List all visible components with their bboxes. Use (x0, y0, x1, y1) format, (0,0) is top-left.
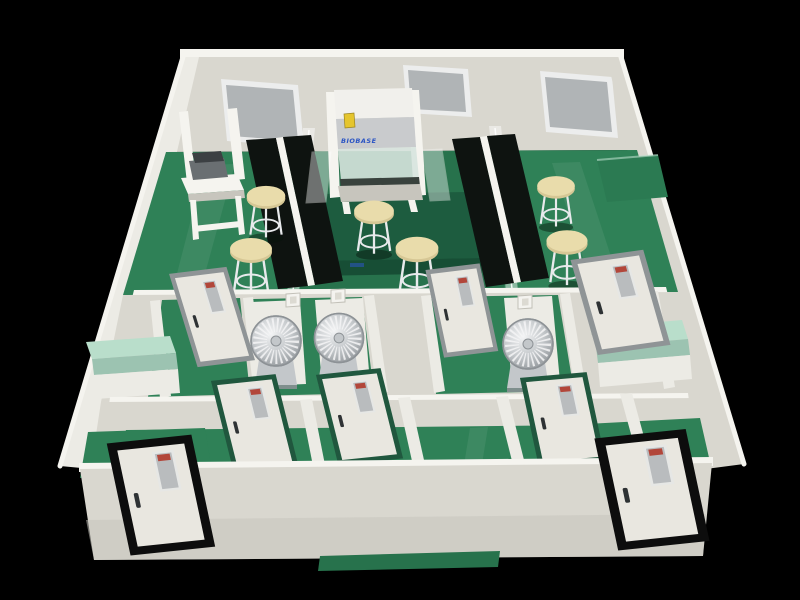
cabinet-sash-glass (338, 147, 419, 181)
light-switch-3 (518, 295, 532, 309)
island-label-smudge (350, 263, 364, 267)
lab-3d-render: BIOBASE (0, 0, 800, 600)
cabinet-brand-text: BIOBASE (341, 137, 377, 145)
entrance-door-right (600, 433, 704, 546)
rear-counter-right (597, 155, 668, 202)
counter-mint-left (86, 336, 180, 399)
light-switch-1 (286, 293, 300, 307)
window-right (540, 71, 618, 138)
lab-scene: BIOBASE (0, 0, 800, 600)
entrance-door-left (112, 439, 210, 551)
cabinet-warning-sticker (344, 113, 355, 128)
benchtop-instrument (189, 151, 228, 180)
light-switch-2 (331, 289, 345, 303)
